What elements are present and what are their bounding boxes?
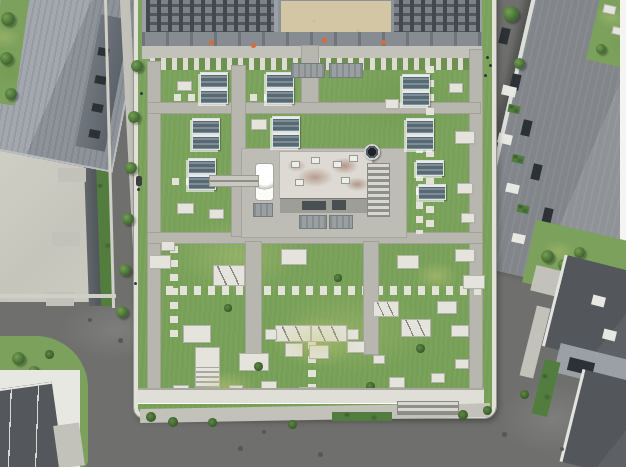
manhole [502,432,507,437]
beam-band [142,32,482,46]
lamp-post [137,188,140,191]
pad [178,204,193,213]
pad [458,184,472,193]
skylight [200,88,228,104]
traffic-cone [209,40,214,45]
skylight [402,90,430,106]
plant-equipment [332,200,346,210]
ramp-bottom [398,402,458,414]
tree [541,250,554,263]
plant-equipment [300,216,326,228]
pad [252,120,266,129]
pad [456,250,474,261]
roof-vent [292,162,299,167]
traffic-cone [322,38,327,43]
tree [116,306,128,318]
bush [520,390,529,399]
pad-with-rails [402,320,430,336]
skylight [192,134,220,150]
traffic-cone [381,40,386,45]
pad [210,210,223,218]
pad [462,214,474,222]
manhole [318,452,323,457]
roof-vent [312,158,319,163]
pad [452,326,468,336]
pad [464,276,484,288]
tree [131,60,143,72]
tree [5,88,17,100]
bush [458,410,468,420]
walkway-connector [302,46,318,108]
skylight [200,72,228,88]
dry-grass-patch [406,256,466,296]
storage-tanks [256,164,273,200]
roof-vent [350,156,357,161]
skylight [272,132,300,148]
pad [150,256,170,268]
manhole [88,318,92,322]
roof-vent [296,180,303,185]
curb-spur-top [0,294,116,298]
tree [1,12,15,26]
stair-tower [368,164,389,216]
lamp-post [140,92,143,95]
louver-bank [292,64,324,77]
bush [334,274,342,282]
manhole [560,447,564,451]
pad [374,356,384,363]
skylight [406,134,434,150]
steel-rack [388,0,480,34]
chimney [364,144,380,160]
plant-south-wall [280,198,372,213]
loading-dock [58,168,86,182]
hedge-strip-terrace [332,412,392,421]
aerial-photo-canvas [0,0,626,467]
pad [282,250,306,264]
pad [456,360,468,368]
roof-vent [334,162,341,167]
pad [184,326,210,342]
bush [416,344,425,353]
pad [432,374,444,382]
tree [596,44,606,54]
pad [178,82,191,90]
tree [574,247,585,258]
pedestrian [486,56,489,59]
skylight [416,160,444,176]
pad [450,84,462,92]
tree [119,264,131,276]
tree [128,111,140,123]
skylight [192,118,220,134]
pad [438,302,456,313]
plant-equipment [302,201,326,210]
tree [514,58,525,69]
plant-equipment [330,216,352,228]
manhole [262,430,266,434]
bush [288,420,297,429]
stepping-path-v [170,246,178,340]
plant-equipment [254,204,272,216]
pad [386,100,398,108]
traffic-cone [251,43,256,48]
skylight [266,88,294,104]
steel-rack [146,0,274,34]
bush [254,362,263,371]
louver-bank [330,64,362,77]
photo-margin [620,0,626,248]
pedestrian [489,64,492,67]
skylight [402,74,430,90]
pad [162,242,174,250]
bush [483,406,492,415]
plant-roof [280,152,372,198]
lamp-post [134,282,137,285]
vehicle [136,176,142,186]
tree [122,213,134,225]
loading-dock [52,232,80,246]
tree [12,352,25,365]
bush [146,412,156,422]
bush [224,304,232,312]
manhole [238,446,243,451]
green-roof-complex [134,0,496,418]
skylight [406,118,434,134]
tree [125,162,137,174]
roof-vent [342,178,349,183]
pad-with-rails [374,302,398,316]
skylight [272,116,300,132]
bush [208,418,217,427]
pedestrian [484,74,487,77]
pipe-rack [210,176,258,186]
dry-grass-patch [256,306,376,376]
pad-with-rails [214,266,244,285]
manhole [118,338,123,343]
pad [390,378,404,387]
tree [0,52,13,65]
skylight [188,158,216,174]
bush [45,350,54,359]
equipment-box [456,132,474,143]
skylight [418,184,446,200]
skylight [266,72,294,88]
tree [503,6,519,22]
bush [168,417,178,427]
